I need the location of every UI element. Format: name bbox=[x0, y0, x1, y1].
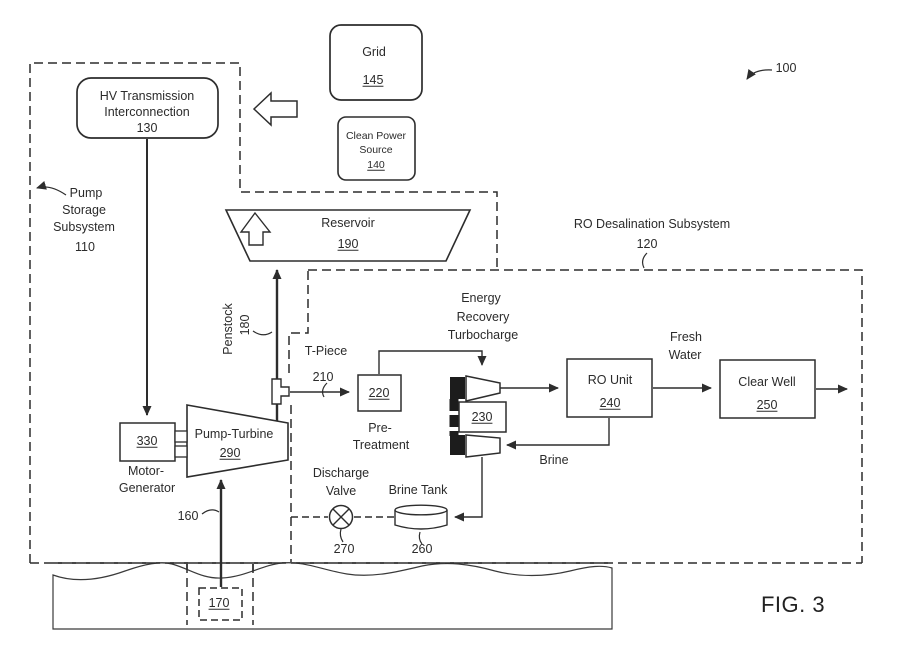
penstock-label: Penstock bbox=[222, 303, 235, 354]
pump-storage-label-2: Storage bbox=[62, 204, 106, 217]
ro-subsystem-ref: 120 bbox=[637, 238, 658, 251]
clean-power-label-2: Source bbox=[359, 145, 392, 156]
turbine-top-shape bbox=[466, 376, 500, 401]
motor-generator-label-2: Generator bbox=[119, 482, 175, 495]
brine-return-line bbox=[507, 418, 609, 445]
pre-treatment-label-1: Pre- bbox=[368, 422, 392, 435]
brine-tank-ref: 260 bbox=[412, 543, 433, 556]
energy-recovery-label-3: Turbocharge bbox=[448, 329, 518, 342]
figure-label: FIG. 3 bbox=[761, 594, 825, 616]
clear-well-label: Clear Well bbox=[738, 376, 795, 389]
ref100-leader-arrow bbox=[747, 70, 772, 79]
grid-label: Grid bbox=[362, 46, 386, 59]
ref180-leader bbox=[253, 331, 272, 335]
penstock-ref: 180 bbox=[239, 315, 252, 336]
hv-ref: 130 bbox=[137, 122, 158, 135]
discharge-valve-ref: 270 bbox=[334, 543, 355, 556]
power-flow-left-arrow-icon bbox=[254, 93, 297, 125]
water-surface-wave bbox=[53, 563, 612, 629]
t-piece-label: T-Piece bbox=[305, 345, 347, 358]
ref160-leader bbox=[202, 510, 219, 514]
t-piece-shape bbox=[272, 379, 289, 404]
pre-treatment-ref: 220 bbox=[369, 387, 390, 400]
reservoir-ref: 190 bbox=[338, 238, 359, 251]
motor-generator-label-1: Motor- bbox=[128, 465, 164, 478]
water-basin bbox=[53, 563, 612, 629]
ro-unit-label: RO Unit bbox=[588, 374, 632, 387]
ro-subsystem-label: RO Desalination Subsystem bbox=[574, 218, 730, 231]
motor-generator-ref: 330 bbox=[137, 435, 158, 448]
pretreatment-to-turbo-line bbox=[379, 351, 482, 374]
ref110-leader-arrow bbox=[37, 187, 66, 195]
fresh-water-label-1: Fresh bbox=[670, 331, 702, 344]
turbo-to-brinetank-line bbox=[455, 457, 482, 517]
t-piece-ref: 210 bbox=[313, 371, 334, 384]
pump-turbine-shape bbox=[187, 405, 288, 477]
coupling-tab-bottom bbox=[175, 446, 187, 457]
discharge-valve-label-2: Valve bbox=[326, 485, 356, 498]
clear-well-ref: 250 bbox=[757, 399, 778, 412]
brine-label: Brine bbox=[539, 454, 568, 467]
coupling-tab-top bbox=[175, 431, 187, 442]
clean-power-label-1: Clean Power bbox=[346, 131, 406, 142]
intake-line-ref: 160 bbox=[178, 510, 199, 523]
turbo-shaft-block-bottom bbox=[450, 435, 465, 455]
overall-ref: 100 bbox=[776, 62, 797, 75]
energy-recovery-label-2: Recovery bbox=[457, 311, 510, 324]
hv-label-2: Interconnection bbox=[104, 106, 189, 119]
ref270-leader bbox=[340, 529, 343, 542]
ref120-leader bbox=[643, 253, 647, 268]
discharge-valve-shape bbox=[330, 506, 353, 529]
grid-ref: 145 bbox=[363, 74, 384, 87]
brine-tank-shape bbox=[395, 505, 447, 529]
energy-recovery-label-1: Energy bbox=[461, 292, 501, 305]
pump-turbine-label: Pump-Turbine bbox=[195, 428, 274, 441]
intake-ref: 170 bbox=[209, 597, 230, 610]
fresh-water-label-2: Water bbox=[669, 349, 702, 362]
brine-tank-label: Brine Tank bbox=[389, 484, 448, 497]
reservoir-label: Reservoir bbox=[321, 217, 375, 230]
pump-storage-label-3: Subsystem bbox=[53, 221, 115, 234]
grid-box bbox=[330, 25, 422, 100]
patent-figure: Grid 145 Clean Power Source 140 HV Trans… bbox=[0, 0, 900, 659]
pump-turbine-ref: 290 bbox=[220, 447, 241, 460]
pre-treatment-label-2: Treatment bbox=[353, 439, 410, 452]
ro-boundary-left-upper bbox=[289, 271, 308, 378]
pump-storage-ref: 110 bbox=[75, 241, 95, 254]
discharge-valve-label-1: Discharge bbox=[313, 467, 369, 480]
pump-storage-label-1: Pump bbox=[70, 187, 103, 200]
turbocharge-ref: 230 bbox=[472, 411, 493, 424]
ref210-leader bbox=[323, 383, 327, 397]
ro-unit-ref: 240 bbox=[600, 397, 621, 410]
hv-label-1: HV Transmission bbox=[100, 90, 194, 103]
brine-tank-top bbox=[395, 505, 447, 515]
turbine-bottom-shape bbox=[466, 435, 500, 457]
turbo-shaft-block-top bbox=[450, 377, 465, 399]
clean-power-ref: 140 bbox=[367, 160, 385, 171]
